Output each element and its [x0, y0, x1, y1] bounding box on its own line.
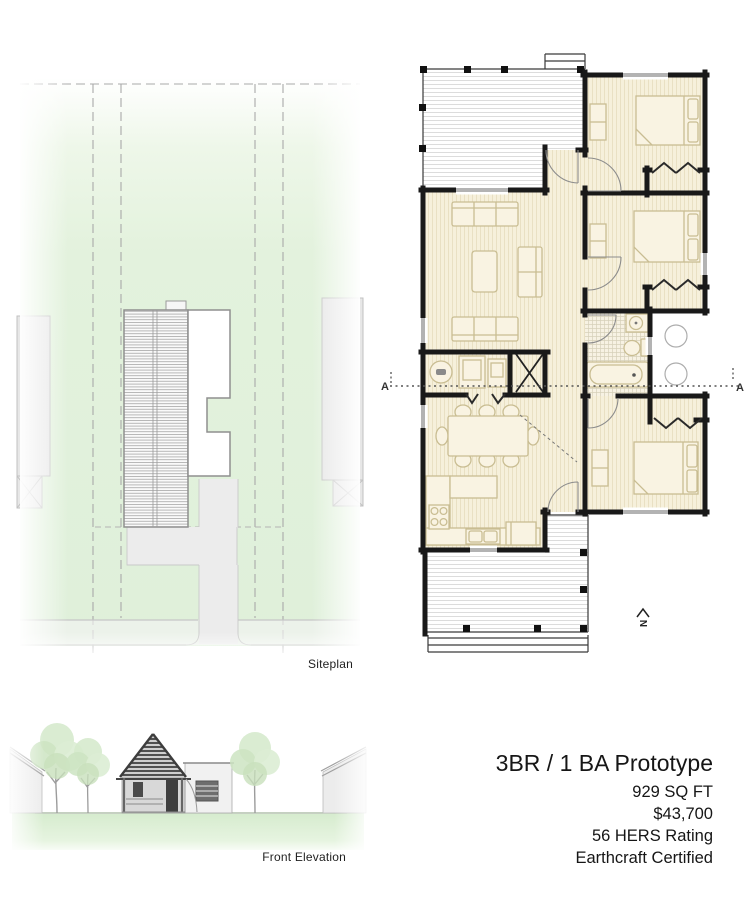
info-block: 3BR / 1 BA Prototype 929 SQ FT $43,700 5… — [496, 749, 713, 869]
laundry-appliances — [430, 356, 506, 388]
sofa-top — [452, 202, 518, 226]
window — [470, 546, 497, 555]
north-arrow: N — [637, 609, 650, 627]
tree — [230, 732, 280, 813]
siteplan-label: Siteplan — [308, 657, 353, 671]
dresser-1 — [590, 104, 606, 140]
window — [623, 508, 668, 517]
elevation-lawn — [12, 812, 364, 850]
bed-3 — [634, 442, 698, 494]
section-label-left: A — [381, 381, 389, 393]
rear-wing — [188, 310, 230, 476]
floorplan-drawing: A A N — [381, 54, 744, 652]
window — [646, 337, 655, 355]
bed-1 — [636, 96, 700, 145]
wing-window — [196, 781, 218, 801]
presentation-sheet: A A N — [0, 0, 750, 900]
dresser-2 — [590, 224, 606, 258]
info-detail-sqft: 929 SQ FT — [496, 781, 713, 803]
foyer-floor — [543, 150, 585, 193]
window — [419, 405, 428, 428]
window — [456, 186, 508, 195]
front-elevation-label: Front Elevation — [262, 850, 346, 864]
gable — [116, 734, 191, 779]
coffee-table — [472, 251, 497, 292]
kitchen-sink — [466, 529, 500, 544]
hatched-roof — [124, 310, 188, 527]
dresser-3 — [592, 450, 608, 486]
window — [419, 318, 428, 343]
info-title: 3BR / 1 BA Prototype — [496, 749, 713, 778]
armchair — [518, 247, 542, 297]
section-label-right: A — [736, 382, 744, 394]
window — [701, 253, 710, 275]
porch-window — [133, 782, 143, 797]
bed-2 — [634, 211, 700, 262]
stove — [429, 505, 449, 529]
siteplan-drawing — [17, 78, 363, 658]
hall-floor — [545, 352, 585, 512]
elevation-drawing — [8, 700, 370, 860]
info-detail-hers: 56 HERS Rating — [496, 825, 713, 847]
refrigerator — [506, 522, 536, 545]
front-door — [166, 780, 178, 812]
window — [623, 71, 668, 80]
north-label: N — [639, 620, 650, 627]
info-detail-price: $43,700 — [496, 803, 713, 825]
sofa-bottom — [452, 317, 518, 341]
info-detail-certification: Earthcraft Certified — [496, 847, 713, 869]
house-front — [116, 734, 234, 813]
shrubs — [665, 325, 687, 385]
